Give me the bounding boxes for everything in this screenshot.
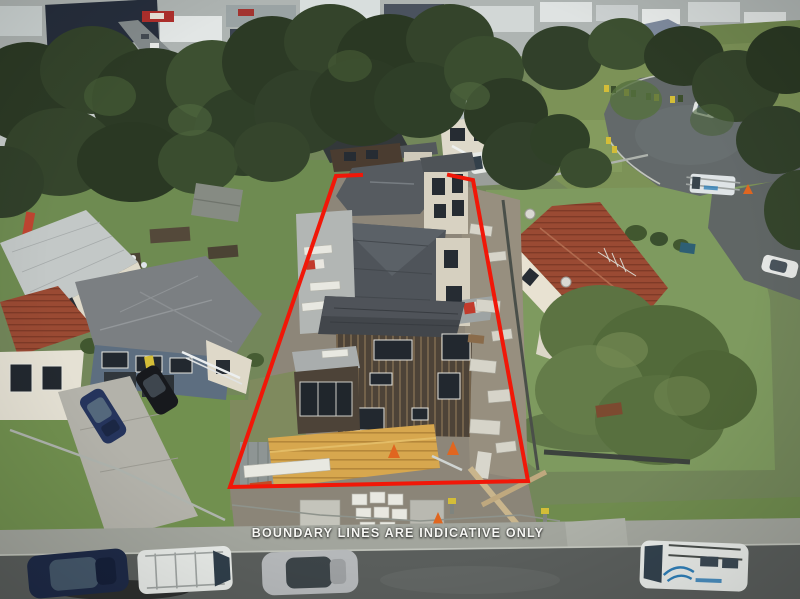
company-van-blue-logo: [639, 540, 749, 592]
aerial-scene: [0, 0, 800, 599]
window: [370, 373, 392, 385]
work-ute: [685, 173, 740, 196]
parked-van-white: [137, 546, 233, 595]
window: [438, 373, 460, 399]
parked-car-navy-street: [26, 548, 129, 599]
aerial-photo: BOUNDARY LINES ARE INDICATIVE ONLY: [0, 0, 800, 599]
glass-doors: [300, 382, 352, 416]
townhouse-near-unit-roof: [318, 296, 465, 338]
boundary-disclaimer-text: BOUNDARY LINES ARE INDICATIVE ONLY: [0, 526, 796, 540]
satellite-dish: [561, 277, 571, 287]
distant-car: [141, 34, 149, 39]
window: [412, 408, 428, 420]
distant-car: [150, 43, 159, 48]
palm-tree: [610, 80, 662, 120]
satellite-dish: [525, 209, 535, 219]
lower-left-unit: [292, 346, 360, 434]
blue-tarp: [679, 242, 695, 254]
garden-bed: [150, 227, 191, 244]
window: [442, 334, 470, 360]
window: [374, 340, 412, 360]
parked-car-silver: [261, 549, 358, 595]
